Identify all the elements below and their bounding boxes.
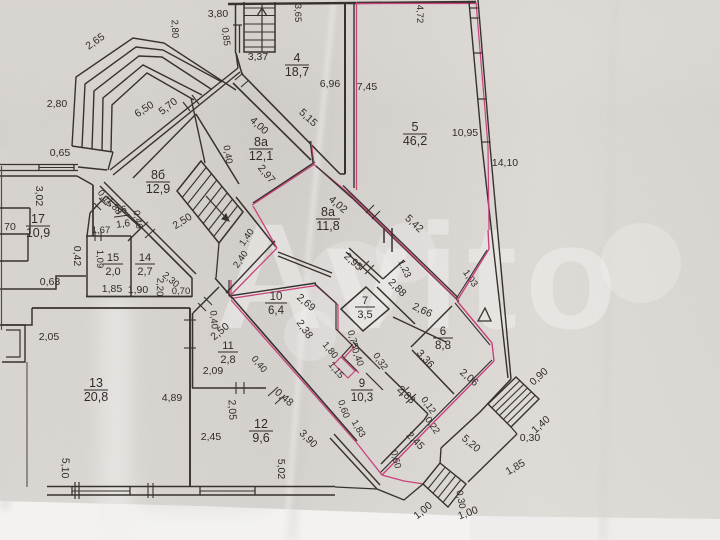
svg-text:2,0: 2,0	[105, 266, 120, 278]
svg-text:0,30: 0,30	[520, 432, 541, 444]
svg-text:12,9: 12,9	[146, 182, 170, 196]
svg-text:15: 15	[107, 252, 119, 264]
svg-text:8,8: 8,8	[435, 340, 451, 352]
svg-text:1,85: 1,85	[102, 283, 123, 295]
svg-text:9,6: 9,6	[252, 431, 269, 445]
svg-text:3,02: 3,02	[33, 186, 45, 207]
svg-text:14,10: 14,10	[492, 157, 518, 169]
svg-text:5,10: 5,10	[59, 458, 72, 479]
svg-text:9: 9	[359, 378, 365, 390]
svg-text:20,8: 20,8	[84, 390, 108, 404]
svg-text:2,05: 2,05	[225, 399, 238, 420]
svg-text:70: 70	[4, 221, 16, 233]
svg-text:13: 13	[89, 376, 103, 390]
svg-text:0,65: 0,65	[50, 147, 71, 159]
svg-text:5: 5	[412, 120, 419, 134]
svg-text:2,7: 2,7	[137, 266, 152, 278]
svg-text:10,95: 10,95	[452, 127, 478, 139]
svg-text:7: 7	[362, 295, 368, 307]
svg-text:1,67: 1,67	[92, 225, 111, 236]
svg-text:Avito: Avito	[215, 192, 624, 360]
svg-text:3,80: 3,80	[208, 8, 229, 20]
svg-text:3,5: 3,5	[357, 309, 372, 321]
svg-text:2,80: 2,80	[169, 19, 181, 38]
svg-text:10,3: 10,3	[351, 392, 373, 404]
svg-text:5,02: 5,02	[275, 459, 287, 480]
svg-text:6,96: 6,96	[320, 78, 341, 90]
svg-text:4,72: 4,72	[414, 5, 425, 24]
svg-text:11,8: 11,8	[316, 219, 339, 233]
svg-text:4: 4	[294, 51, 301, 65]
svg-text:12: 12	[254, 417, 268, 431]
svg-text:8а: 8а	[254, 135, 268, 149]
svg-text:17: 17	[31, 212, 45, 226]
svg-text:1,6: 1,6	[116, 218, 132, 231]
svg-text:6: 6	[440, 326, 446, 338]
svg-text:4,89: 4,89	[162, 392, 183, 404]
svg-text:3,37: 3,37	[248, 51, 269, 63]
svg-text:2,45: 2,45	[201, 431, 222, 443]
svg-text:6,4: 6,4	[268, 305, 285, 317]
svg-text:14: 14	[139, 252, 151, 264]
svg-text:10: 10	[270, 291, 283, 303]
svg-text:7,45: 7,45	[357, 81, 378, 93]
svg-text:0,42: 0,42	[71, 246, 83, 267]
svg-text:1,90: 1,90	[128, 284, 149, 296]
svg-text:12,1: 12,1	[249, 149, 273, 163]
svg-text:46,2: 46,2	[403, 134, 427, 148]
svg-text:2,09: 2,09	[203, 365, 224, 377]
svg-text:1,09: 1,09	[94, 250, 105, 269]
svg-text:0,70: 0,70	[172, 286, 191, 297]
svg-text:2,05: 2,05	[39, 331, 60, 343]
svg-text:8б: 8б	[151, 168, 165, 182]
svg-text:3,65: 3,65	[292, 4, 303, 23]
svg-text:0,63: 0,63	[40, 276, 61, 288]
svg-text:0,85: 0,85	[219, 27, 232, 47]
svg-text:2,80: 2,80	[47, 98, 68, 110]
svg-text:18,7: 18,7	[285, 65, 309, 79]
svg-text:11: 11	[222, 340, 233, 352]
